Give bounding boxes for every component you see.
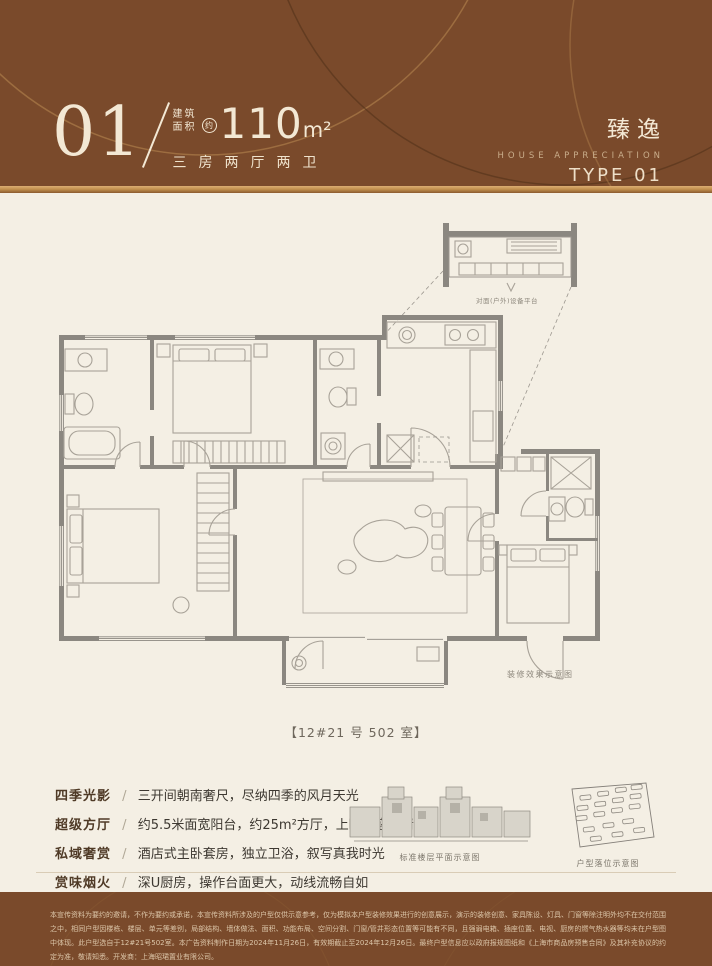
approx-badge: 约 [202, 118, 217, 133]
siteplan-caption: 户型落位示意图 [556, 858, 660, 869]
series-block: 臻逸 HOUSE APPRECIATION TYPE 01 [498, 110, 660, 186]
area-value: 110 [220, 104, 303, 144]
inset-detail [443, 223, 577, 291]
feature-item: 赏味烟火 / 深U厨房，操作台面更大，动线流畅自如 [55, 872, 355, 891]
area-group: 建筑 面积 约 110 m² 三房两厅两卫 [173, 100, 332, 172]
feature-desc: 深U厨房，操作台面更大，动线流畅自如 [138, 876, 369, 891]
floorplate-diagram: 标准楼层平面示意图 [345, 783, 535, 863]
feature-title: 超级方厅 [55, 818, 111, 833]
footer-divider [36, 872, 676, 873]
area-label: 建筑 面积 [173, 104, 197, 134]
unit-headline: 01 建筑 面积 约 110 m² 三房两厅两卫 [52, 100, 332, 172]
feature-title: 四季光影 [55, 789, 111, 804]
feature-separator: / [122, 847, 126, 862]
siteplan-drawing [556, 781, 660, 851]
windows [60, 336, 600, 688]
feature-separator: / [122, 818, 126, 833]
room-layout-text: 三房两厅两卫 [173, 152, 332, 172]
reserved-appliance-outline [419, 437, 449, 462]
slash-divider [141, 102, 169, 168]
room-caption: 【12#21 号 502 室】 [0, 722, 712, 741]
decoration-note: 装修效果示意图 [507, 669, 574, 680]
floorplate-caption: 标准楼层平面示意图 [345, 852, 535, 863]
series-title: 臻逸 [498, 110, 667, 144]
siteplan-diagram: 户型落位示意图 [556, 781, 660, 869]
legal-disclaimer: 本宣传资料为要约的邀请，不作为要约或承诺，本宣传资料所涉及的户型仅供示意参考，仅… [50, 908, 666, 964]
feature-separator: / [122, 789, 126, 804]
type-label: TYPE 01 [498, 165, 663, 186]
feature-item: 超级方厅 / 约5.5米面宽阳台，约25m²方厅，上映丰盛剧情 [55, 814, 355, 833]
footer-band: 本宣传资料为要约的邀请，不作为要约或承诺，本宣传资料所涉及的户型仅供示意参考，仅… [0, 892, 712, 966]
poster-page: 01 建筑 面积 约 110 m² 三房两厅两卫 臻逸 [0, 0, 712, 966]
feature-separator: / [122, 876, 126, 891]
furniture [64, 322, 593, 670]
area-unit: m² [303, 118, 332, 142]
gold-divider [0, 186, 712, 193]
feature-item: 私域奢赏 / 酒店式主卧套房，独立卫浴，叙写真我时光 [55, 843, 355, 862]
floor-plan-drawing [55, 211, 615, 707]
unit-number: 01 [52, 100, 143, 167]
walls [59, 315, 600, 685]
feature-list: 四季光影 / 三开间朝南奢尺，尽纳四季的风月天光 超级方厅 / 约5.5米面宽阳… [55, 785, 355, 901]
feature-title: 私域奢赏 [55, 847, 111, 862]
inset-note: 对面(户外)设备平台 [427, 295, 587, 305]
header-band: 01 建筑 面积 约 110 m² 三房两厅两卫 臻逸 [0, 0, 712, 193]
series-subtitle: HOUSE APPRECIATION [498, 151, 664, 161]
feature-item: 四季光影 / 三开间朝南奢尺，尽纳四季的风月天光 [55, 785, 355, 804]
feature-title: 赏味烟火 [55, 876, 111, 891]
floorplate-drawing [348, 783, 533, 845]
floor-plan: 对面(户外)设备平台 装修效果示意图 [55, 211, 615, 707]
feature-desc: 三开间朝南奢尺，尽纳四季的风月天光 [138, 789, 359, 804]
main-content: 对面(户外)设备平台 装修效果示意图 【12#21 号 502 室】 四季光影 … [0, 193, 712, 892]
